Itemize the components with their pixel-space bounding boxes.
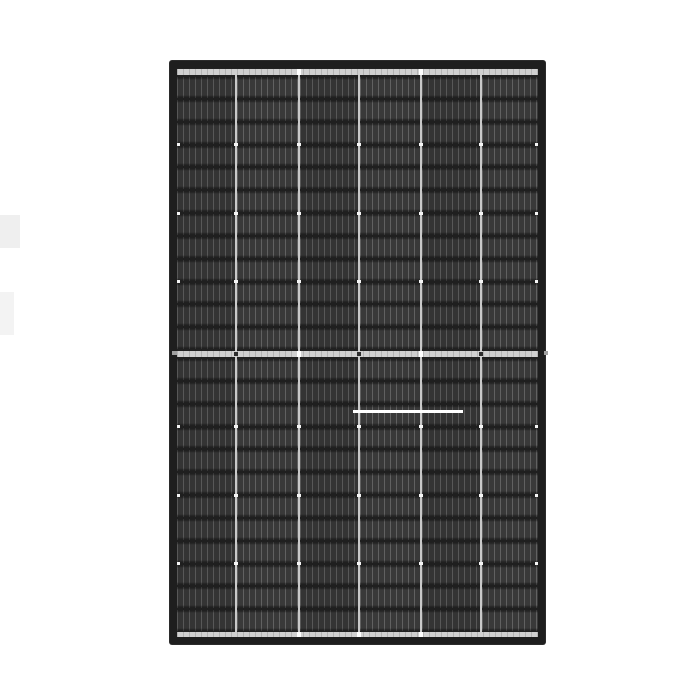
solder-joint-dot xyxy=(479,562,483,565)
solar-cell xyxy=(300,496,358,517)
solar-cell xyxy=(177,359,235,380)
solar-cell xyxy=(422,214,480,235)
solar-cell xyxy=(237,610,298,631)
rail-junction-dot-dark xyxy=(234,352,238,356)
solar-cell xyxy=(360,450,420,471)
solar-cell xyxy=(422,565,480,586)
solar-cell xyxy=(237,77,298,98)
solder-joint-dot xyxy=(535,562,538,565)
solar-cell xyxy=(360,191,420,212)
solar-cell xyxy=(237,450,298,471)
solder-joint-dot xyxy=(357,143,361,146)
panel-glass xyxy=(177,68,538,637)
solar-cell xyxy=(177,123,235,144)
solar-cell xyxy=(300,450,358,471)
solar-cell xyxy=(360,382,420,403)
solar-cell xyxy=(482,496,538,517)
solar-cell xyxy=(177,428,235,449)
solder-joint-dot xyxy=(297,494,301,497)
glare-highlight-line xyxy=(353,410,463,413)
solar-cell xyxy=(422,496,480,517)
solar-cell xyxy=(177,168,235,189)
solar-cell xyxy=(237,123,298,144)
solder-joint-dot xyxy=(297,562,301,565)
solder-joint-dot xyxy=(177,562,180,565)
solar-cell xyxy=(300,146,358,167)
solar-cell xyxy=(177,496,235,517)
solar-cell xyxy=(237,496,298,517)
solar-cell xyxy=(237,405,298,426)
solar-cell xyxy=(422,146,480,167)
solar-cell xyxy=(177,237,235,258)
solder-joint-dot xyxy=(419,425,423,428)
solar-cell xyxy=(482,405,538,426)
rail-junction-dot-light xyxy=(297,351,301,357)
rail-junction-dot-dark xyxy=(357,352,361,356)
solar-cell xyxy=(177,587,235,608)
rail-junction-dot-light xyxy=(419,351,423,357)
solar-cell xyxy=(300,542,358,563)
solar-cell xyxy=(360,283,420,304)
solder-joint-dot xyxy=(177,143,180,146)
solar-cell xyxy=(422,610,480,631)
solder-joint-dot xyxy=(177,212,180,215)
solar-cell xyxy=(177,214,235,235)
solder-joint-dot xyxy=(419,562,423,565)
solar-cell xyxy=(482,305,538,326)
solar-cell xyxy=(360,496,420,517)
solar-cell xyxy=(237,473,298,494)
solder-joint-dot xyxy=(357,425,361,428)
solar-cell xyxy=(300,191,358,212)
solar-cell xyxy=(360,359,420,380)
solar-cell xyxy=(360,587,420,608)
solar-cell xyxy=(300,305,358,326)
solder-joint-dot xyxy=(234,562,238,565)
solar-cell xyxy=(422,359,480,380)
rail-junction-dot-light xyxy=(297,69,301,75)
rail-junction-dot-light xyxy=(419,632,423,637)
solar-cell xyxy=(300,519,358,540)
solar-cell xyxy=(237,168,298,189)
solar-cell xyxy=(177,260,235,281)
solar-cell xyxy=(360,519,420,540)
solar-cell xyxy=(177,305,235,326)
solar-cell xyxy=(360,123,420,144)
solar-cell xyxy=(482,168,538,189)
solder-joint-dot xyxy=(357,562,361,565)
solar-cell xyxy=(422,123,480,144)
solar-cell xyxy=(177,473,235,494)
solar-cell xyxy=(177,283,235,304)
solar-cell xyxy=(177,146,235,167)
frame-tick xyxy=(544,351,548,355)
solar-cell xyxy=(482,260,538,281)
solar-cell xyxy=(422,382,480,403)
solar-cell xyxy=(237,260,298,281)
solder-joint-dot xyxy=(419,212,423,215)
rail-junction-dot-light xyxy=(297,632,301,637)
solder-joint-dot xyxy=(479,425,483,428)
solar-cell xyxy=(360,542,420,563)
solar-cell xyxy=(177,565,235,586)
solar-cell xyxy=(360,473,420,494)
solar-cell xyxy=(300,328,358,349)
solar-cell xyxy=(482,237,538,258)
solder-joint-dot xyxy=(535,425,538,428)
solar-cell xyxy=(300,405,358,426)
solder-joint-dot xyxy=(297,212,301,215)
solar-cell xyxy=(482,77,538,98)
solar-cell xyxy=(422,542,480,563)
solder-joint-dot xyxy=(234,143,238,146)
solar-cell xyxy=(300,100,358,121)
frame-tick xyxy=(172,351,177,355)
solder-joint-dot xyxy=(535,143,538,146)
solar-cell xyxy=(237,565,298,586)
solar-cell xyxy=(482,359,538,380)
solder-joint-dot xyxy=(357,280,361,283)
solar-cell xyxy=(237,428,298,449)
solar-cell xyxy=(300,123,358,144)
solar-cell xyxy=(482,328,538,349)
solar-cell xyxy=(300,214,358,235)
solder-joint-dot xyxy=(234,280,238,283)
solar-cell xyxy=(300,237,358,258)
solar-panel xyxy=(169,60,546,645)
solar-cell xyxy=(360,237,420,258)
solar-cell xyxy=(237,519,298,540)
solar-cell xyxy=(300,610,358,631)
solar-cell xyxy=(422,168,480,189)
solar-cell xyxy=(237,214,298,235)
solar-cell xyxy=(237,237,298,258)
solder-joint-dot xyxy=(357,494,361,497)
solar-cell xyxy=(482,473,538,494)
solar-cell xyxy=(177,77,235,98)
solder-joint-dot xyxy=(479,143,483,146)
solar-cell xyxy=(300,565,358,586)
solar-cell xyxy=(422,260,480,281)
solder-joint-dot xyxy=(479,280,483,283)
solar-cell xyxy=(177,450,235,471)
solar-cell xyxy=(422,191,480,212)
solar-cell xyxy=(300,428,358,449)
solar-cell xyxy=(360,428,420,449)
solar-cell xyxy=(360,77,420,98)
solder-joint-dot xyxy=(177,494,180,497)
solar-cell xyxy=(482,382,538,403)
solar-cell xyxy=(482,610,538,631)
solar-cell xyxy=(422,100,480,121)
solar-cell xyxy=(360,405,420,426)
solar-cell xyxy=(422,587,480,608)
solder-joint-dot xyxy=(535,212,538,215)
solar-cell xyxy=(360,100,420,121)
solar-cell xyxy=(482,191,538,212)
solar-cell xyxy=(177,610,235,631)
solder-joint-dot xyxy=(297,280,301,283)
solder-joint-dot xyxy=(419,494,423,497)
solar-cell xyxy=(422,305,480,326)
solder-joint-dot xyxy=(535,280,538,283)
solar-cell xyxy=(177,405,235,426)
solar-cell xyxy=(237,542,298,563)
solar-cell xyxy=(300,382,358,403)
solar-cell xyxy=(237,283,298,304)
solar-cell xyxy=(482,146,538,167)
solar-cell xyxy=(422,283,480,304)
solar-cell xyxy=(422,405,480,426)
background-artifact xyxy=(0,215,20,248)
solar-cell xyxy=(360,214,420,235)
solder-joint-dot xyxy=(234,494,238,497)
solar-cell xyxy=(177,519,235,540)
solar-cell xyxy=(482,450,538,471)
product-photo-canvas xyxy=(0,0,700,700)
solar-cell xyxy=(300,168,358,189)
solar-cell xyxy=(237,328,298,349)
solar-cell xyxy=(360,146,420,167)
solar-cell xyxy=(360,260,420,281)
solder-joint-dot xyxy=(234,425,238,428)
solar-cell xyxy=(422,473,480,494)
solder-joint-dot xyxy=(419,280,423,283)
solar-cell xyxy=(300,77,358,98)
solar-cell xyxy=(422,328,480,349)
solar-cell xyxy=(237,100,298,121)
solar-cell xyxy=(177,100,235,121)
solar-cell xyxy=(237,587,298,608)
solar-cell xyxy=(360,305,420,326)
solar-cell xyxy=(237,382,298,403)
solar-cell xyxy=(422,77,480,98)
solar-cell xyxy=(482,542,538,563)
solar-cell xyxy=(300,587,358,608)
solder-joint-dot xyxy=(297,425,301,428)
solar-cell xyxy=(300,359,358,380)
solder-joint-dot xyxy=(297,143,301,146)
solar-cell xyxy=(237,359,298,380)
solar-cell xyxy=(360,168,420,189)
solar-cell xyxy=(482,214,538,235)
solar-cell xyxy=(482,519,538,540)
solar-cell xyxy=(482,283,538,304)
solar-cell xyxy=(237,305,298,326)
solder-joint-dot xyxy=(479,494,483,497)
solar-cell xyxy=(177,328,235,349)
solar-cell xyxy=(177,191,235,212)
solar-cell xyxy=(482,100,538,121)
solar-cell xyxy=(300,283,358,304)
solar-cell xyxy=(482,123,538,144)
solder-joint-dot xyxy=(479,212,483,215)
solder-joint-dot xyxy=(177,425,180,428)
solar-cell xyxy=(300,260,358,281)
solder-joint-dot xyxy=(535,494,538,497)
rail-junction-dot-light xyxy=(419,69,423,75)
solar-cell xyxy=(482,565,538,586)
solar-cell xyxy=(360,328,420,349)
solar-cell xyxy=(360,610,420,631)
solder-joint-dot xyxy=(419,143,423,146)
solar-cell xyxy=(237,146,298,167)
cross-rail-top xyxy=(177,69,538,75)
solder-joint-dot xyxy=(357,212,361,215)
solar-cell xyxy=(422,428,480,449)
solar-cell xyxy=(482,587,538,608)
solder-joint-dot xyxy=(177,280,180,283)
solar-cell xyxy=(482,428,538,449)
solder-joint-dot xyxy=(234,212,238,215)
background-artifact xyxy=(0,292,14,335)
solar-cell xyxy=(422,519,480,540)
solar-cell xyxy=(422,237,480,258)
rail-junction-dot-light xyxy=(357,632,361,637)
solar-cell xyxy=(177,542,235,563)
rail-junction-dot-dark xyxy=(479,352,483,356)
solar-cell xyxy=(422,450,480,471)
solar-cell xyxy=(360,565,420,586)
solar-cell xyxy=(300,473,358,494)
solar-cell xyxy=(237,191,298,212)
solar-cell xyxy=(177,382,235,403)
